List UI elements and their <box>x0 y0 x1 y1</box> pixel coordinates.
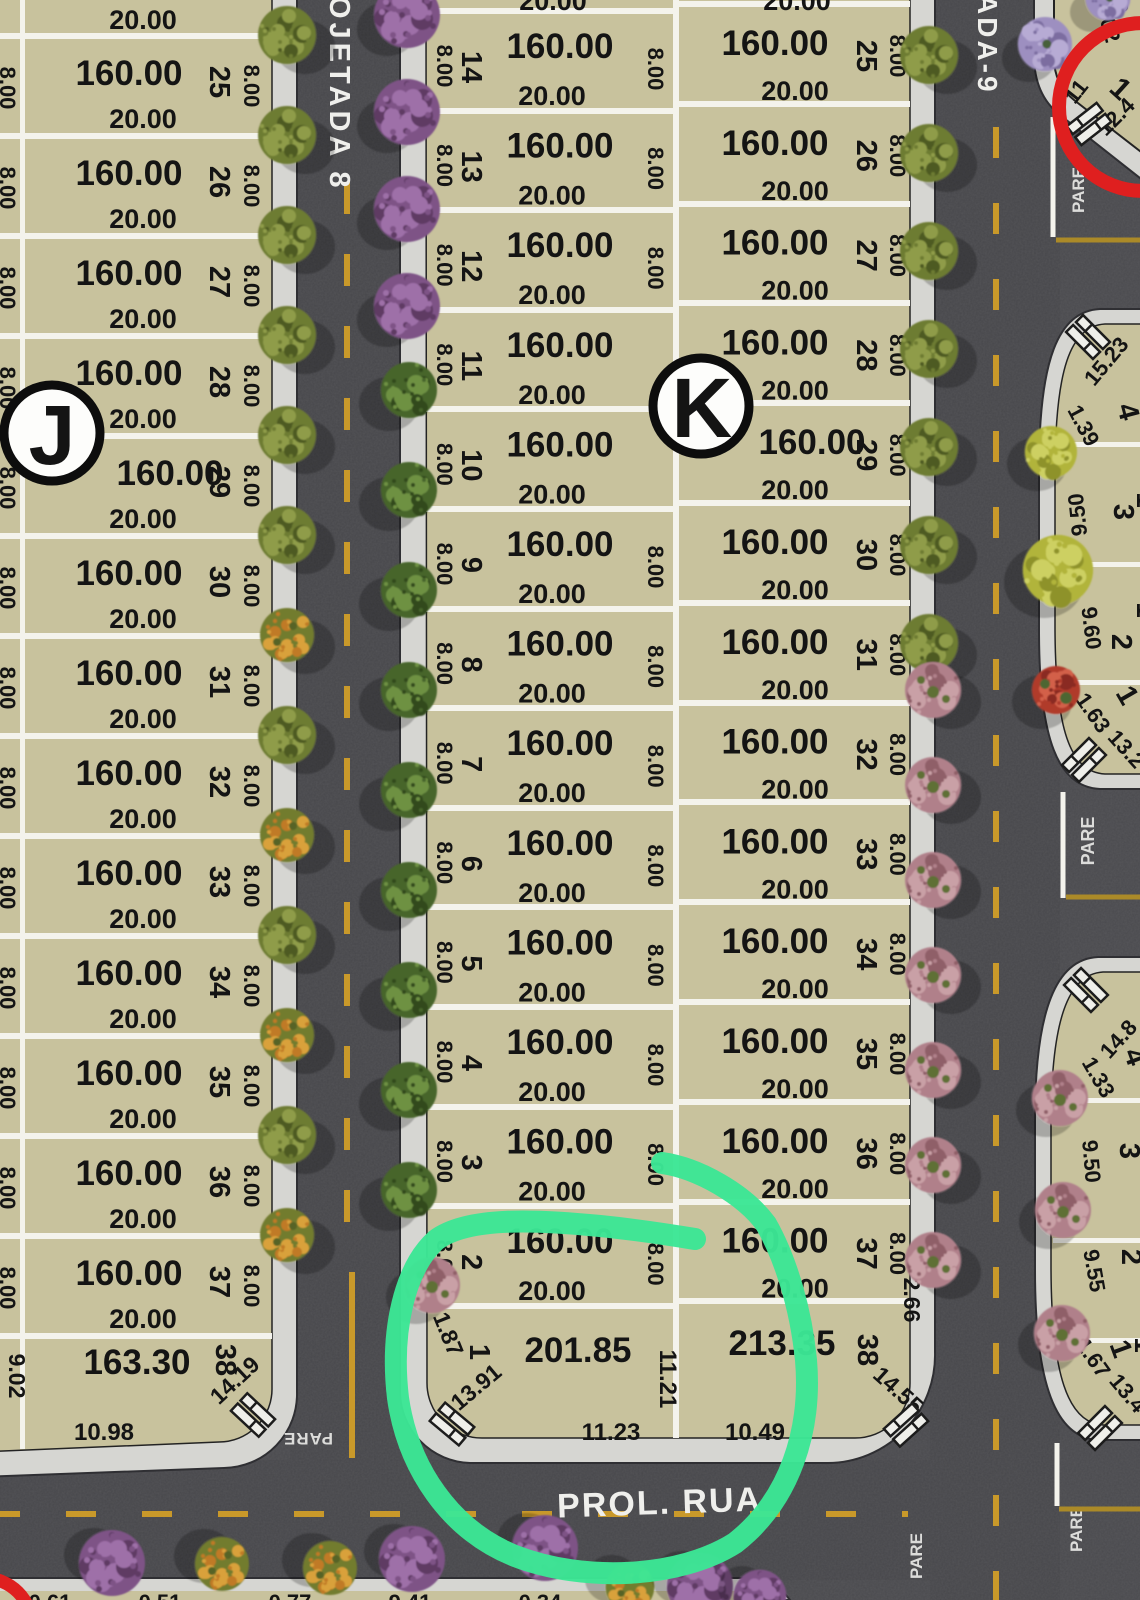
svg-text:8.00: 8.00 <box>0 767 20 810</box>
svg-text:37: 37 <box>203 1266 235 1298</box>
svg-text:20.00: 20.00 <box>518 1177 586 1207</box>
svg-text:160.00: 160.00 <box>721 1122 828 1161</box>
svg-text:160.00: 160.00 <box>721 922 828 961</box>
svg-text:11.23: 11.23 <box>582 1419 641 1446</box>
svg-text:8.00: 8.00 <box>239 365 264 408</box>
svg-text:160.00: 160.00 <box>75 654 182 693</box>
svg-text:8.00: 8.00 <box>0 267 20 310</box>
svg-text:160.00: 160.00 <box>75 154 182 193</box>
svg-text:8.00: 8.00 <box>239 665 264 708</box>
svg-text:20.00: 20.00 <box>518 878 586 908</box>
svg-text:7: 7 <box>455 756 487 772</box>
svg-text:0.34: 0.34 <box>519 1590 563 1600</box>
svg-text:9.50: 9.50 <box>1063 492 1092 537</box>
svg-text:37: 37 <box>850 1237 882 1269</box>
svg-text:20.00: 20.00 <box>109 404 177 434</box>
svg-text:160.00: 160.00 <box>506 724 613 763</box>
svg-text:35: 35 <box>203 1066 235 1098</box>
svg-text:PARE: PARE <box>1067 1506 1086 1552</box>
svg-text:8.00: 8.00 <box>239 765 264 808</box>
svg-text:9.50: 9.50 <box>1077 1139 1106 1184</box>
svg-text:20.00: 20.00 <box>518 181 586 211</box>
svg-text:8.00: 8.00 <box>432 244 457 287</box>
svg-text:27: 27 <box>850 239 882 271</box>
svg-text:8.00: 8.00 <box>643 1044 668 1087</box>
svg-text:20.00: 20.00 <box>518 81 586 111</box>
svg-text:PARE: PARE <box>283 1429 333 1448</box>
svg-text:201.85: 201.85 <box>524 1331 631 1370</box>
svg-text:160.00: 160.00 <box>721 24 828 63</box>
svg-text:38: 38 <box>851 1334 883 1366</box>
svg-text:8.00: 8.00 <box>643 1243 668 1286</box>
svg-text:8.00: 8.00 <box>432 841 457 884</box>
svg-text:20.00: 20.00 <box>109 504 177 534</box>
svg-text:6: 6 <box>455 856 487 872</box>
svg-text:3: 3 <box>455 1155 487 1171</box>
svg-text:20.00: 20.00 <box>518 977 586 1007</box>
svg-text:160.00: 160.00 <box>506 824 613 863</box>
svg-text:160.00: 160.00 <box>506 127 613 166</box>
svg-text:160.00: 160.00 <box>506 525 613 564</box>
svg-text:20.00: 20.00 <box>761 775 829 805</box>
svg-text:8.00: 8.00 <box>432 742 457 785</box>
svg-text:32: 32 <box>850 738 882 770</box>
svg-text:35: 35 <box>850 1038 882 1070</box>
svg-text:PROL. RUA: PROL. RUA <box>557 1480 763 1525</box>
svg-text:8: 8 <box>455 657 487 673</box>
svg-text:8.00: 8.00 <box>0 567 20 610</box>
svg-text:33: 33 <box>203 866 235 898</box>
svg-text:32: 32 <box>203 766 235 798</box>
svg-text:8.00: 8.00 <box>432 443 457 486</box>
svg-text:30: 30 <box>203 566 235 598</box>
svg-text:20.00: 20.00 <box>761 76 829 106</box>
svg-text:26: 26 <box>203 166 235 198</box>
svg-text:11: 11 <box>455 350 487 381</box>
svg-text:8.00: 8.00 <box>239 265 264 308</box>
svg-text:20.00: 20.00 <box>109 104 177 134</box>
svg-text:PARE: PARE <box>907 1533 926 1579</box>
svg-text:20.00: 20.00 <box>518 1276 586 1306</box>
svg-text:20.00: 20.00 <box>763 0 831 16</box>
svg-text:8.00: 8.00 <box>643 944 668 987</box>
svg-text:8.00: 8.00 <box>643 745 668 788</box>
svg-text:8.00: 8.00 <box>0 1167 20 1210</box>
svg-text:11.21: 11.21 <box>654 1350 681 1409</box>
svg-text:8.00: 8.00 <box>239 1165 264 1208</box>
svg-text:2: 2 <box>1105 634 1137 650</box>
svg-text:20.00: 20.00 <box>518 280 586 310</box>
svg-text:12: 12 <box>455 250 487 282</box>
svg-text:20.00: 20.00 <box>761 1174 829 1204</box>
svg-text:5: 5 <box>455 955 487 971</box>
svg-text:160.00: 160.00 <box>506 425 613 464</box>
svg-text:20.00: 20.00 <box>518 479 586 509</box>
svg-text:160.00: 160.00 <box>75 554 182 593</box>
svg-text:8.00: 8.00 <box>0 667 20 710</box>
svg-text:29: 29 <box>203 466 235 498</box>
svg-text:20.00: 20.00 <box>761 575 829 605</box>
svg-text:9: 9 <box>455 557 487 573</box>
svg-text:10.49: 10.49 <box>725 1419 785 1446</box>
svg-text:8.00: 8.00 <box>0 867 20 910</box>
svg-text:34: 34 <box>850 938 882 970</box>
svg-text:PARE: PARE <box>1078 817 1098 866</box>
svg-text:8.00: 8.00 <box>0 1067 20 1110</box>
svg-text:8.00: 8.00 <box>643 48 668 91</box>
svg-text:160.00: 160.00 <box>721 723 828 762</box>
svg-text:160.00: 160.00 <box>721 822 828 861</box>
svg-text:0.51: 0.51 <box>139 1590 182 1600</box>
svg-text:13: 13 <box>455 150 487 182</box>
svg-text:30: 30 <box>850 539 882 571</box>
svg-text:160.00: 160.00 <box>721 623 828 662</box>
svg-text:20.00: 20.00 <box>109 304 177 334</box>
svg-text:20.00: 20.00 <box>109 904 177 934</box>
svg-text:26: 26 <box>850 140 882 172</box>
svg-text:20.00: 20.00 <box>109 5 177 35</box>
svg-text:8.00: 8.00 <box>432 642 457 685</box>
svg-text:1: 1 <box>1131 602 1140 618</box>
svg-text:9.60: 9.60 <box>1076 605 1106 651</box>
svg-text:25: 25 <box>203 66 235 98</box>
svg-text:36: 36 <box>203 1166 235 1198</box>
svg-text:20.00: 20.00 <box>109 1304 177 1334</box>
svg-text:160.00: 160.00 <box>506 226 613 265</box>
svg-text:8.00: 8.00 <box>239 1265 264 1308</box>
svg-text:28: 28 <box>850 339 882 371</box>
svg-text:160.00: 160.00 <box>721 1022 828 1061</box>
svg-text:160.00: 160.00 <box>75 354 182 393</box>
svg-text:10.98: 10.98 <box>74 1419 134 1446</box>
svg-text:8.00: 8.00 <box>643 147 668 190</box>
svg-text:160.00: 160.00 <box>721 323 828 362</box>
svg-text:20.00: 20.00 <box>761 276 829 306</box>
svg-text:20.00: 20.00 <box>761 475 829 505</box>
svg-text:20.00: 20.00 <box>761 675 829 705</box>
svg-text:34: 34 <box>203 966 235 998</box>
svg-text:2: 2 <box>1115 1249 1140 1265</box>
svg-text:160.00: 160.00 <box>506 923 613 962</box>
svg-text:8.00: 8.00 <box>432 941 457 984</box>
svg-text:8.00: 8.00 <box>643 546 668 589</box>
svg-text:20.00: 20.00 <box>109 1204 177 1234</box>
svg-text:36: 36 <box>850 1138 882 1170</box>
svg-text:31: 31 <box>203 666 235 698</box>
svg-text:8.00: 8.00 <box>432 543 457 586</box>
svg-text:1: 1 <box>1131 492 1140 508</box>
svg-text:8.00: 8.00 <box>0 967 20 1010</box>
svg-text:160.00: 160.00 <box>75 754 182 793</box>
svg-text:20.00: 20.00 <box>109 704 177 734</box>
svg-text:J: J <box>29 388 76 482</box>
svg-text:10: 10 <box>455 449 487 481</box>
svg-text:160.00: 160.00 <box>721 523 828 562</box>
svg-text:8.00: 8.00 <box>239 965 264 1008</box>
svg-text:160.00: 160.00 <box>75 54 182 93</box>
svg-text:4: 4 <box>455 1055 487 1071</box>
svg-text:20.00: 20.00 <box>761 375 829 405</box>
svg-text:K: K <box>672 361 733 455</box>
svg-text:8.00: 8.00 <box>432 343 457 386</box>
svg-text:1: 1 <box>1129 1337 1140 1353</box>
svg-text:20.00: 20.00 <box>109 604 177 634</box>
svg-text:160.00: 160.00 <box>721 224 828 263</box>
svg-text:160.00: 160.00 <box>506 1123 613 1162</box>
svg-text:8.00: 8.00 <box>239 65 264 108</box>
svg-text:20.00: 20.00 <box>518 380 586 410</box>
svg-text:8.00: 8.00 <box>239 165 264 208</box>
svg-text:160.00: 160.00 <box>75 854 182 893</box>
svg-text:8.00: 8.00 <box>643 844 668 887</box>
svg-text:8.00: 8.00 <box>885 833 910 876</box>
svg-text:213.35: 213.35 <box>728 1324 835 1363</box>
svg-text:20.00: 20.00 <box>518 579 586 609</box>
svg-text:ADA-9: ADA-9 <box>972 0 1003 95</box>
svg-text:8.00: 8.00 <box>643 247 668 290</box>
svg-text:160.00: 160.00 <box>75 1254 182 1293</box>
svg-text:8.00: 8.00 <box>0 167 20 210</box>
svg-text:160.00: 160.00 <box>506 27 613 66</box>
svg-text:8.00: 8.00 <box>432 144 457 187</box>
svg-text:0.61: 0.61 <box>29 1590 72 1600</box>
svg-text:8.00: 8.00 <box>239 565 264 608</box>
svg-text:160.00: 160.00 <box>506 326 613 365</box>
svg-text:160.00: 160.00 <box>721 124 828 163</box>
svg-text:20.00: 20.00 <box>518 1077 586 1107</box>
svg-text:9.02: 9.02 <box>4 1354 30 1399</box>
svg-text:28: 28 <box>203 366 235 398</box>
svg-text:160.00: 160.00 <box>758 423 865 462</box>
svg-text:20.00: 20.00 <box>761 1074 829 1104</box>
svg-text:8.00: 8.00 <box>239 865 264 908</box>
svg-text:20.00: 20.00 <box>109 1004 177 1034</box>
svg-text:20.00: 20.00 <box>761 874 829 904</box>
svg-text:8.00: 8.00 <box>643 645 668 688</box>
svg-text:160.00: 160.00 <box>75 1154 182 1193</box>
svg-text:31: 31 <box>850 639 882 671</box>
svg-text:160.00: 160.00 <box>75 254 182 293</box>
svg-text:20.00: 20.00 <box>518 778 586 808</box>
svg-text:160.00: 160.00 <box>75 954 182 993</box>
svg-text:8.00: 8.00 <box>239 1065 264 1108</box>
svg-text:20.00: 20.00 <box>518 679 586 709</box>
svg-text:8.00: 8.00 <box>885 733 910 776</box>
svg-text:14: 14 <box>455 51 487 83</box>
svg-text:25: 25 <box>850 40 882 72</box>
svg-text:163.30: 163.30 <box>83 1343 190 1382</box>
svg-text:27: 27 <box>203 266 235 298</box>
svg-text:20.00: 20.00 <box>519 0 587 16</box>
svg-text:8.00: 8.00 <box>0 467 20 510</box>
svg-text:33: 33 <box>850 838 882 870</box>
svg-text:160.00: 160.00 <box>506 625 613 664</box>
svg-text:20.00: 20.00 <box>109 204 177 234</box>
svg-text:8.00: 8.00 <box>239 465 264 508</box>
svg-text:8.00: 8.00 <box>0 1267 20 1310</box>
svg-text:8.00: 8.00 <box>432 1041 457 1084</box>
svg-text:20.00: 20.00 <box>761 176 829 206</box>
svg-text:8.00: 8.00 <box>0 67 20 110</box>
svg-text:160.00: 160.00 <box>506 1023 613 1062</box>
svg-text:8.00: 8.00 <box>432 1140 457 1183</box>
svg-text:3: 3 <box>1113 1143 1140 1159</box>
svg-text:20.00: 20.00 <box>109 804 177 834</box>
svg-text:2: 2 <box>455 1254 487 1270</box>
svg-text:20.00: 20.00 <box>761 974 829 1004</box>
svg-text:8.00: 8.00 <box>432 45 457 88</box>
svg-text:0.77: 0.77 <box>269 1590 312 1600</box>
svg-text:160.00: 160.00 <box>75 1054 182 1093</box>
svg-text:29: 29 <box>850 439 882 471</box>
svg-text:20.00: 20.00 <box>109 1104 177 1134</box>
